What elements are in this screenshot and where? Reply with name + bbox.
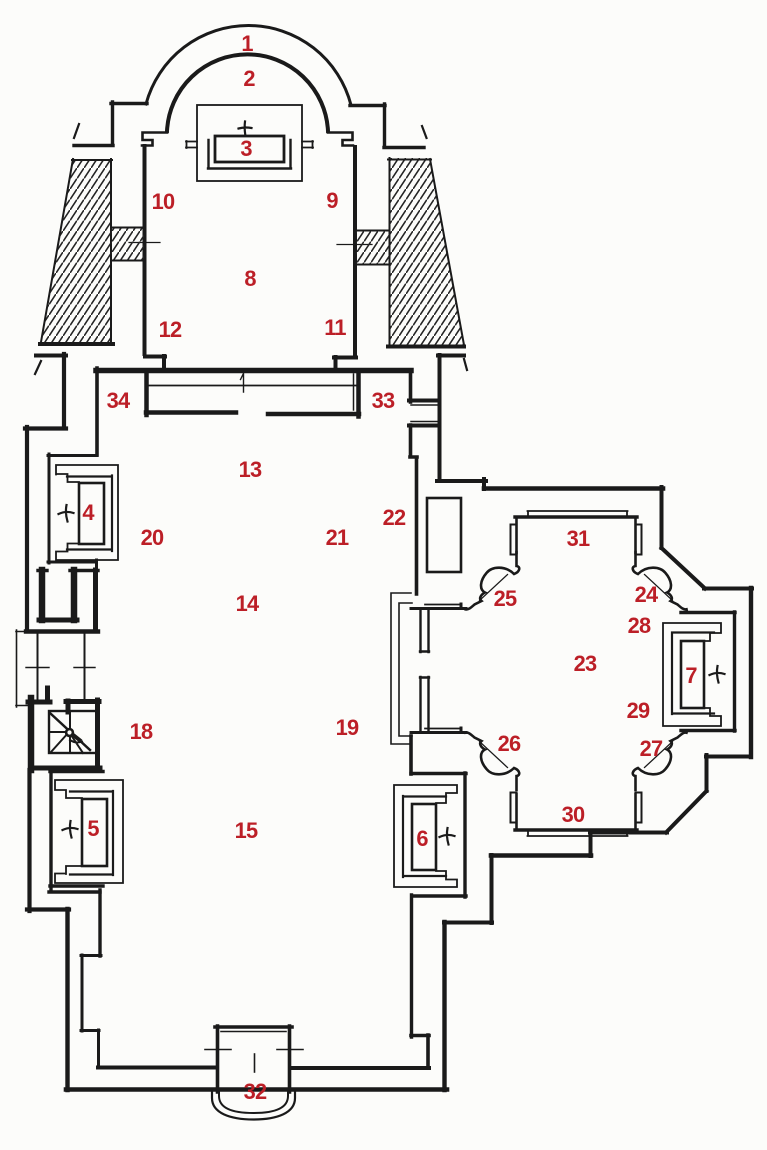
svg-text:23: 23	[574, 651, 597, 676]
svg-text:31: 31	[567, 526, 590, 551]
svg-text:20: 20	[141, 525, 164, 550]
svg-text:10: 10	[152, 189, 175, 214]
svg-text:12: 12	[159, 317, 182, 342]
svg-text:24: 24	[635, 582, 658, 607]
svg-text:29: 29	[627, 698, 650, 723]
svg-text:28: 28	[628, 613, 651, 638]
svg-text:19: 19	[336, 715, 359, 740]
svg-text:6: 6	[416, 826, 428, 851]
svg-text:21: 21	[326, 525, 349, 550]
svg-text:1: 1	[241, 31, 253, 56]
svg-text:9: 9	[326, 188, 338, 213]
svg-text:26: 26	[498, 731, 521, 756]
svg-text:25: 25	[494, 586, 517, 611]
svg-text:30: 30	[562, 802, 585, 827]
svg-text:2: 2	[243, 66, 255, 91]
svg-text:13: 13	[239, 457, 262, 482]
svg-text:18: 18	[130, 719, 153, 744]
svg-text:34: 34	[107, 388, 130, 413]
svg-text:7: 7	[685, 663, 697, 688]
svg-text:3: 3	[240, 136, 252, 161]
svg-text:5: 5	[87, 816, 99, 841]
svg-text:33: 33	[372, 388, 395, 413]
svg-text:14: 14	[236, 591, 259, 616]
svg-text:22: 22	[383, 505, 406, 530]
svg-text:27: 27	[640, 736, 663, 761]
svg-text:11: 11	[324, 315, 346, 340]
svg-text:8: 8	[244, 266, 256, 291]
svg-text:4: 4	[82, 500, 94, 525]
svg-text:15: 15	[235, 818, 258, 843]
svg-text:32: 32	[244, 1079, 267, 1104]
